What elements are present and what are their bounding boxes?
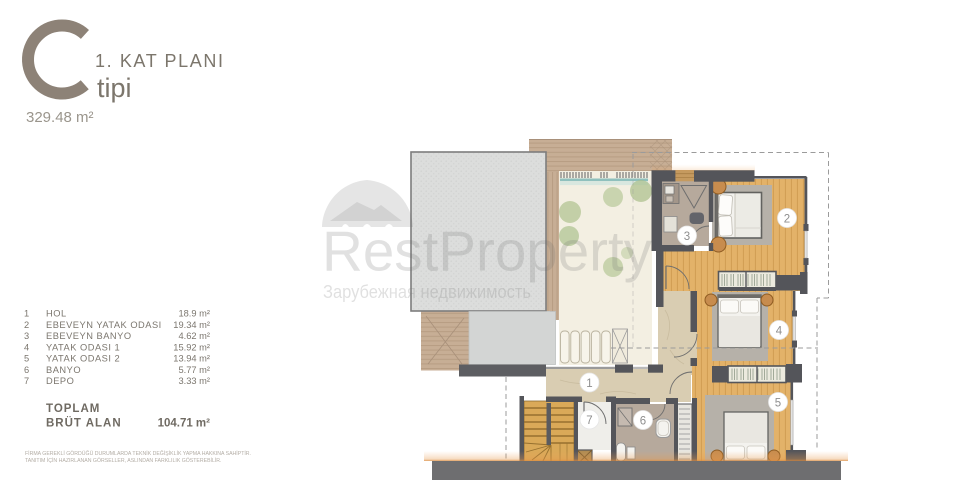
svg-text:YATAK ODASI 1: YATAK ODASI 1 (46, 342, 120, 352)
svg-text:DEPO: DEPO (46, 376, 74, 386)
svg-text:18.9 m²: 18.9 m² (178, 309, 210, 319)
svg-text:1: 1 (586, 378, 592, 390)
svg-text:2: 2 (24, 320, 29, 330)
svg-text:19.34 m²: 19.34 m² (173, 320, 210, 330)
svg-text:1: 1 (24, 309, 29, 319)
svg-text:TOPLAM: TOPLAM (46, 403, 100, 415)
svg-text:3.33 m²: 3.33 m² (178, 376, 210, 386)
svg-text:6: 6 (24, 365, 29, 375)
svg-text:TANITIM İÇİN HAZIRLANAN GÖRSEL: TANITIM İÇİN HAZIRLANAN GÖRSELLER, ASLIN… (25, 457, 222, 464)
svg-text:15.92 m²: 15.92 m² (173, 342, 210, 352)
svg-text:5: 5 (24, 354, 29, 364)
svg-text:Зарубежная недвижимость: Зарубежная недвижимость (323, 281, 531, 302)
svg-text:EBEVEYN YATAK ODASI: EBEVEYN YATAK ODASI (46, 320, 162, 330)
svg-text:7: 7 (24, 376, 29, 386)
svg-text:6: 6 (640, 416, 646, 428)
svg-text:tipi: tipi (97, 73, 132, 103)
svg-text:5: 5 (775, 398, 781, 410)
svg-text:EBEVEYN BANYO: EBEVEYN BANYO (46, 331, 132, 341)
svg-text:1. KAT PLANI: 1. KAT PLANI (95, 51, 225, 71)
svg-text:4: 4 (776, 326, 783, 338)
svg-text:2: 2 (784, 214, 790, 226)
svg-text:7: 7 (586, 415, 592, 427)
svg-text:4: 4 (24, 342, 29, 352)
svg-text:13.94 m²: 13.94 m² (173, 354, 210, 364)
svg-text:BANYO: BANYO (46, 365, 81, 375)
svg-text:FİRMA GEREKLİ GÖRDÜĞÜ DURUMLAR: FİRMA GEREKLİ GÖRDÜĞÜ DURUMLARDA TEKNİK … (25, 450, 251, 457)
svg-text:YATAK ODASI 2: YATAK ODASI 2 (46, 354, 120, 364)
svg-text:HOL: HOL (46, 309, 67, 319)
svg-text:104.71 m²: 104.71 m² (158, 418, 211, 430)
svg-text:3: 3 (684, 231, 690, 243)
svg-text:BRÜT ALAN: BRÜT ALAN (46, 417, 122, 430)
svg-text:329.48 m²: 329.48 m² (26, 109, 94, 126)
svg-text:RestProperty: RestProperty (322, 220, 652, 284)
svg-text:4.62 m²: 4.62 m² (178, 331, 210, 341)
svg-text:5.77 m²: 5.77 m² (178, 365, 210, 375)
svg-text:3: 3 (24, 331, 29, 341)
